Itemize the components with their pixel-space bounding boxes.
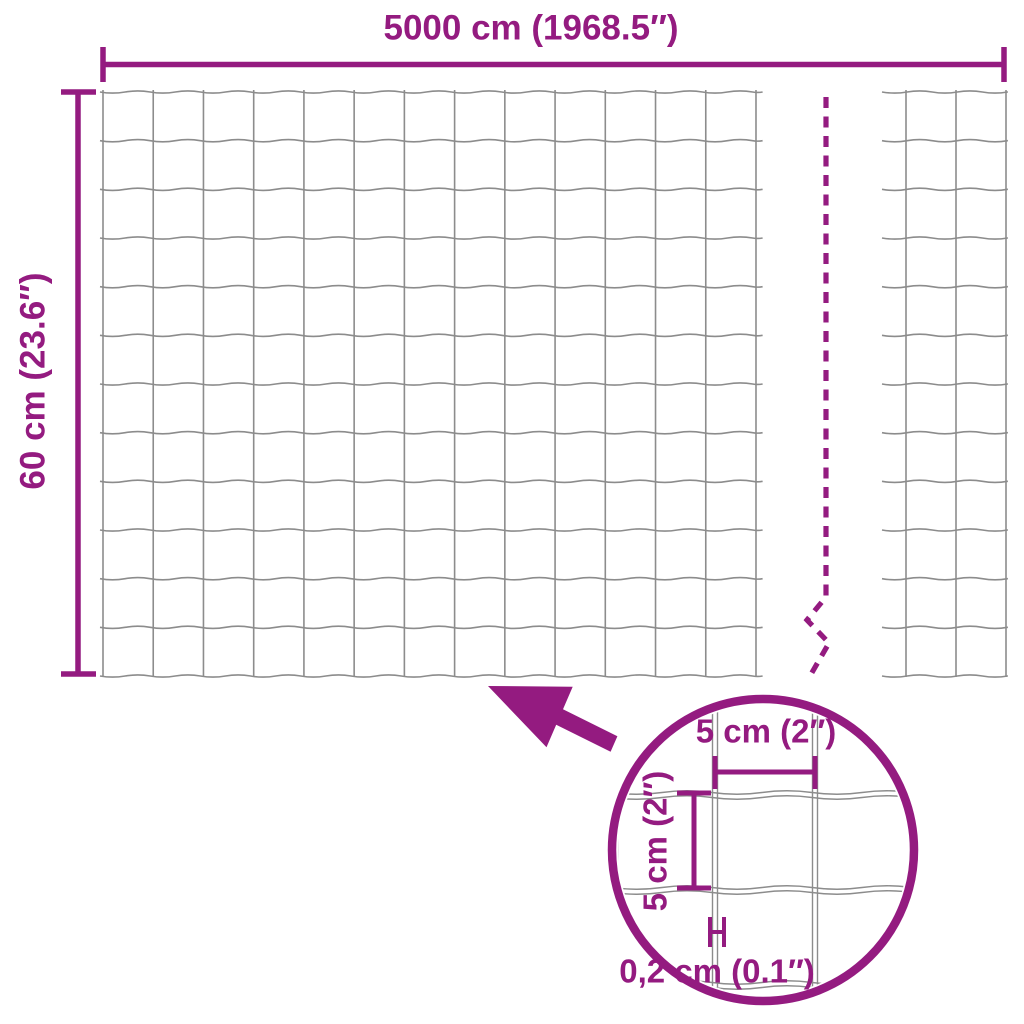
zoom-arrow xyxy=(488,686,617,752)
total-height-label: 60 cm (23.6″) xyxy=(14,272,53,489)
mesh-horizontal-wire xyxy=(100,91,763,93)
mesh-horizontal-wire xyxy=(100,432,763,434)
mesh-horizontal-wire xyxy=(882,188,1008,190)
main-mesh-panel xyxy=(100,90,763,677)
mesh-horizontal-wire xyxy=(882,626,1008,628)
mesh-horizontal-wire xyxy=(882,480,1008,482)
mesh-horizontal-wire xyxy=(100,626,763,628)
detail-cell-height-label: 5 cm (2″) xyxy=(637,771,674,912)
mesh-horizontal-wire xyxy=(100,140,763,142)
break-line xyxy=(807,97,829,676)
mesh-horizontal-wire xyxy=(100,334,763,336)
mesh-horizontal-wire xyxy=(882,578,1008,580)
mesh-horizontal-wire xyxy=(882,675,1008,677)
mesh-horizontal-wire xyxy=(100,237,763,239)
mesh-horizontal-wire xyxy=(100,675,763,677)
mesh-horizontal-wire xyxy=(882,286,1008,288)
mesh-horizontal-wire xyxy=(882,334,1008,336)
mesh-horizontal-wire xyxy=(100,480,763,482)
mesh-horizontal-wire xyxy=(882,383,1008,385)
mesh-horizontal-wire xyxy=(100,286,763,288)
diagram-canvas: 5000 cm (1968.5″) 60 cm (23.6″) 5 cm (2″… xyxy=(0,0,1024,1024)
wire-mesh-diagram: 5000 cm (1968.5″) 60 cm (23.6″) 5 cm (2″… xyxy=(0,0,1024,1024)
mesh-horizontal-wire xyxy=(882,140,1008,142)
mesh-horizontal-wire xyxy=(882,237,1008,239)
detail-magnifier: 5 cm (2″) 5 cm (2″) 0,2 cm (0.1″) xyxy=(612,696,918,1001)
mesh-horizontal-wire xyxy=(100,188,763,190)
mesh-horizontal-wire xyxy=(100,529,763,531)
left-height-dimension: 60 cm (23.6″) xyxy=(14,92,97,674)
detail-cell-width-label: 5 cm (2″) xyxy=(696,713,837,750)
mesh-horizontal-wire xyxy=(100,578,763,580)
mesh-horizontal-wire xyxy=(100,383,763,385)
right-mesh-panel xyxy=(882,90,1008,677)
mesh-horizontal-wire xyxy=(882,432,1008,434)
top-width-dimension: 5000 cm (1968.5″) xyxy=(103,9,1004,83)
total-width-label: 5000 cm (1968.5″) xyxy=(383,9,678,48)
detail-wire-thickness-label: 0,2 cm (0.1″) xyxy=(619,953,815,990)
mesh-horizontal-wire xyxy=(882,529,1008,531)
mesh-horizontal-wire xyxy=(882,91,1008,93)
